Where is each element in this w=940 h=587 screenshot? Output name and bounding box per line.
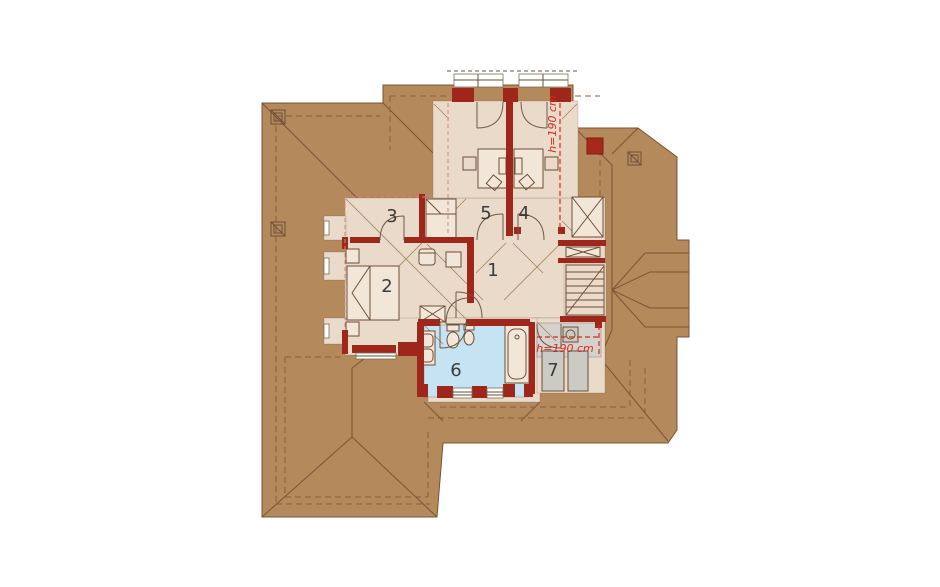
height-label-top: h=190 cm: [546, 95, 559, 152]
bedroom-window: [356, 353, 396, 359]
room-label-1: 1: [487, 260, 498, 281]
chimney: [587, 138, 603, 154]
balcony-door: [454, 74, 503, 87]
cabinet: [566, 247, 600, 257]
bed-single: [426, 199, 456, 239]
bathtub: [505, 325, 529, 383]
height-label-bottom: h=190 cm: [536, 342, 593, 355]
nightstand: [346, 249, 359, 263]
washing-machine: [563, 327, 578, 342]
side-table: [446, 252, 461, 267]
room-label-3: 3: [386, 206, 397, 227]
room-label-5: 5: [480, 203, 491, 224]
bay-window: [487, 388, 503, 398]
room-label-2: 2: [381, 276, 392, 297]
toilet: [447, 325, 459, 348]
floor-plan-drawing: h=190 cm h=190 cm 1 2 3 4 5 6 7: [0, 0, 940, 587]
room-label-6: 6: [450, 360, 461, 381]
room-label-4: 4: [518, 203, 529, 224]
storage-cabinet: [568, 351, 588, 391]
room-label-7: 7: [547, 360, 558, 381]
armchair: [419, 249, 435, 265]
balcony-door: [519, 74, 568, 87]
floor-plan-canvas: h=190 cm h=190 cm 1 2 3 4 5 6 7: [0, 0, 940, 587]
bay-window: [453, 388, 472, 398]
wardrobe: [572, 197, 603, 237]
